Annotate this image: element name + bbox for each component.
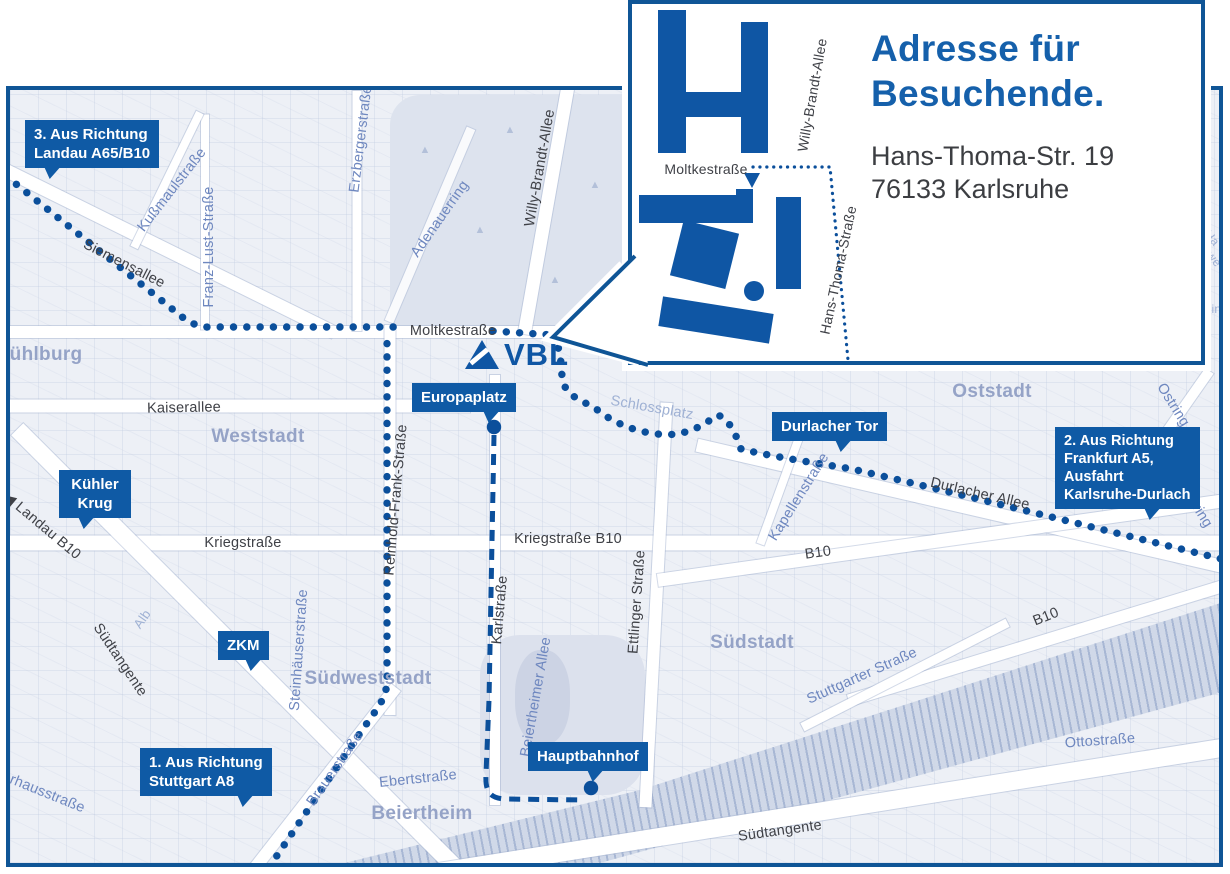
- inset-street-label-moltkestrasse: Moltkestraße: [664, 161, 747, 177]
- inset-pointer-tail: [540, 250, 665, 380]
- badge-zkm: ZKM: [218, 631, 269, 660]
- badge-stuttgart-line1: 1. Aus Richtung: [149, 753, 263, 772]
- street-label-moltkestrasse: Moltkestraße: [410, 323, 496, 339]
- vbl-directions-map: ▲ ▲ ▲ ▲ ▲ ▲: [0, 0, 1230, 874]
- badge-europaplatz: Europaplatz: [412, 383, 516, 412]
- badge-zkm-line1: ZKM: [227, 636, 260, 655]
- badge-kuehler-line1: Kühler: [68, 475, 122, 494]
- inset-title-line2: Besuchende.: [871, 71, 1105, 116]
- badge-landau-line2: Landau A65/B10: [34, 144, 150, 163]
- badge-frankfurt-line4: Karlsruhe-Durlach: [1064, 486, 1191, 504]
- inset-address-line2: 76133 Karlsruhe: [871, 173, 1114, 206]
- badge-landau: 3. Aus Richtung Landau A65/B10: [25, 120, 159, 168]
- badge-frankfurt-line2: Frankfurt A5,: [1064, 450, 1191, 468]
- street-label-kriegstrasse-b10: Kriegstraße B10: [514, 531, 622, 547]
- badge-durlacher-tor-line1: Durlacher Tor: [781, 417, 878, 436]
- street-label-kriegstrasse: Kriegstraße: [204, 535, 281, 551]
- district-label-suedstadt: Südstadt: [710, 632, 794, 654]
- district-label-oststadt: Oststadt: [952, 381, 1031, 403]
- street-label-kaiserallee: Kaiserallee: [147, 399, 221, 416]
- badge-durlacher-tor: Durlacher Tor: [772, 412, 887, 441]
- district-label-suedweststadt: Südweststadt: [304, 668, 431, 690]
- badge-frankfurt-line1: 2. Aus Richtung: [1064, 432, 1191, 450]
- badge-frankfurt: 2. Aus Richtung Frankfurt A5, Ausfahrt K…: [1055, 427, 1200, 509]
- street-label-franz-lust: Franz-Lust-Straße: [201, 186, 217, 307]
- edge-fragment-ein: ein: [1205, 302, 1222, 316]
- inset-address-line1: Hans-Thoma-Str. 19: [871, 140, 1114, 173]
- badge-kuehler-krug: Kühler Krug: [59, 470, 131, 518]
- badge-kuehler-line2: Krug: [68, 494, 122, 513]
- inset-title-line1: Adresse für: [871, 26, 1105, 71]
- vbl-triangle-icon: [465, 340, 499, 369]
- badge-stuttgart: 1. Aus Richtung Stuttgart A8: [140, 748, 272, 796]
- badge-frankfurt-line3: Ausfahrt: [1064, 468, 1191, 486]
- inset-address: Hans-Thoma-Str. 19 76133 Karlsruhe: [871, 140, 1114, 206]
- district-label-beiertheim: Beiertheim: [371, 803, 472, 825]
- hauptbahnhof-marker-dot: [584, 781, 598, 795]
- badge-stuttgart-line2: Stuttgart A8: [149, 772, 263, 791]
- badge-europaplatz-line1: Europaplatz: [421, 388, 507, 407]
- district-label-muehlburg: Mühlburg: [6, 344, 82, 366]
- address-inset-panel: Moltkestraße Willy-Brandt-Allee Hans-Tho…: [628, 0, 1205, 365]
- inset-title: Adresse für Besuchende.: [871, 26, 1105, 116]
- badge-hauptbahnhof: Hauptbahnhof: [528, 742, 648, 771]
- badge-landau-line1: 3. Aus Richtung: [34, 125, 150, 144]
- badge-hauptbahnhof-line1: Hauptbahnhof: [537, 747, 639, 766]
- district-label-weststadt: Weststadt: [211, 426, 304, 448]
